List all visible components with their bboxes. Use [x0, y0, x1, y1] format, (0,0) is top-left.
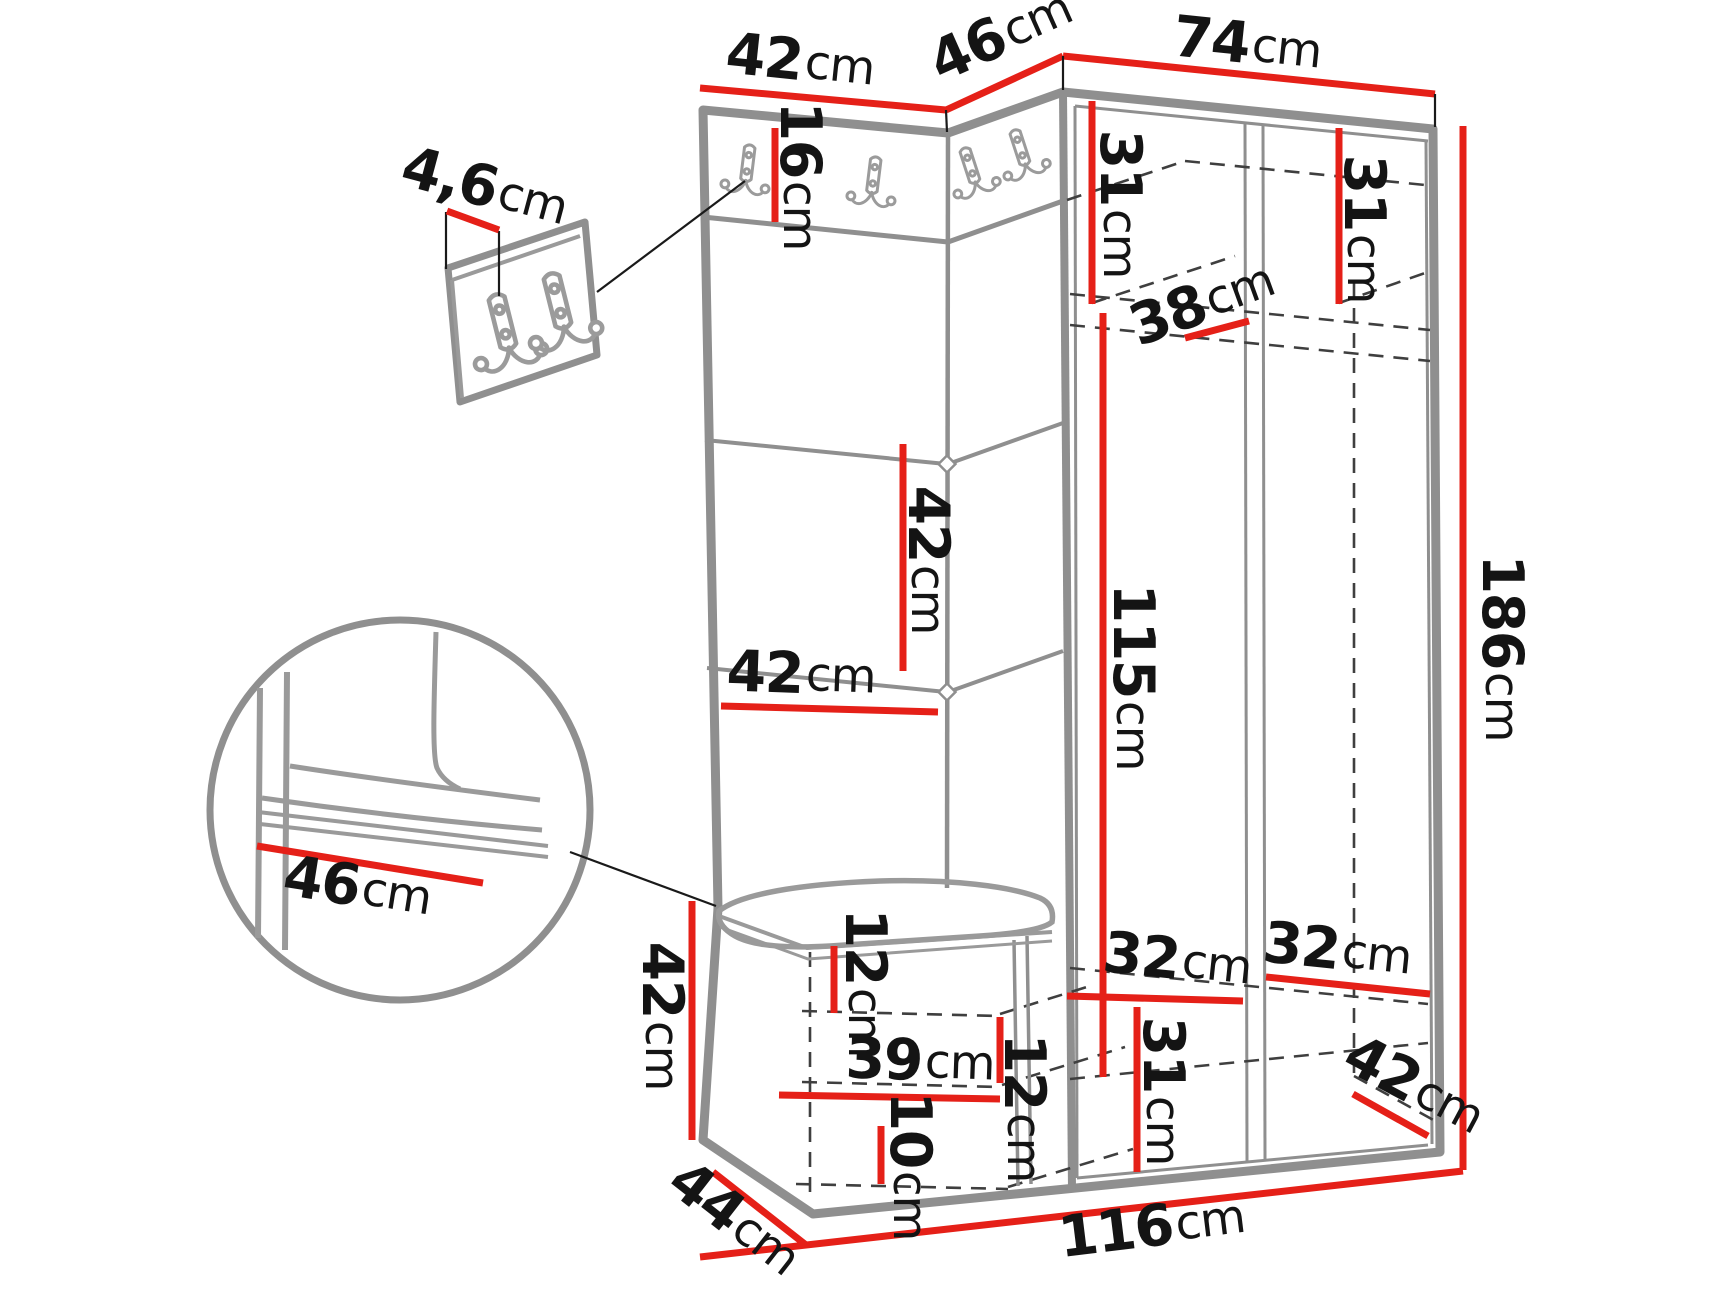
svg-text:31cm: 31cm: [1087, 130, 1153, 279]
svg-text:42cm: 42cm: [629, 942, 695, 1091]
svg-text:12cm: 12cm: [991, 1034, 1057, 1183]
dimension-label-hook-rail-height: 16cm: [767, 102, 833, 251]
svg-text:31cm: 31cm: [1130, 1017, 1196, 1166]
detail-circle: [210, 620, 590, 1000]
dimension-label-total-width: 116cm: [1055, 1182, 1249, 1270]
dimension-label-bottom-section-height: 31cm: [1130, 1017, 1196, 1166]
double-hook-icon: [460, 286, 550, 376]
svg-text:42cm: 42cm: [895, 486, 961, 635]
dimension-label-left-shelf-height: 31cm: [1087, 130, 1153, 279]
dimension-label-right-shelf-height: 31cm: [1331, 155, 1397, 304]
dimension-label-panel-width: 42cm: [726, 638, 877, 709]
dimension-label-hanging-height: 115cm: [1100, 583, 1166, 770]
svg-text:42cm: 42cm: [726, 638, 877, 709]
dimension-label-bench-height: 42cm: [629, 942, 695, 1091]
svg-text:116cm: 116cm: [1055, 1182, 1249, 1270]
extension-line: [946, 110, 947, 132]
svg-text:115cm: 115cm: [1100, 583, 1166, 770]
dimension-label-bench-inner-width: 39cm: [845, 1025, 996, 1096]
left-door-edge: [1075, 106, 1077, 1178]
furniture-dimension-diagram: 42cm 46cm 74cm 16cm 31cm 38cm 31cm 42cm …: [0, 0, 1726, 1295]
dimension-line-bottom-left-width: [1067, 996, 1243, 1001]
hook-panel-detail: [446, 181, 745, 402]
dimension-label-total-height: 186cm: [1469, 554, 1535, 741]
svg-text:16cm: 16cm: [767, 102, 833, 251]
dimension-line-top-wardrobe-width: [1063, 56, 1435, 94]
svg-text:10cm: 10cm: [877, 1092, 943, 1241]
svg-text:39cm: 39cm: [845, 1025, 996, 1096]
diagram-canvas: 42cm 46cm 74cm 16cm 31cm 38cm 31cm 42cm …: [0, 0, 1726, 1295]
hook-panel-outline: [448, 222, 597, 402]
svg-text:31cm: 31cm: [1331, 155, 1397, 304]
dimension-label-bench-bottom-clearance: 10cm: [877, 1092, 943, 1241]
dimension-label-panel-segment-height: 42cm: [895, 486, 961, 635]
svg-text:186cm: 186cm: [1469, 554, 1535, 741]
dimension-label-bench-shelf-clearance: 12cm: [991, 1034, 1057, 1183]
callout-line: [570, 852, 716, 906]
